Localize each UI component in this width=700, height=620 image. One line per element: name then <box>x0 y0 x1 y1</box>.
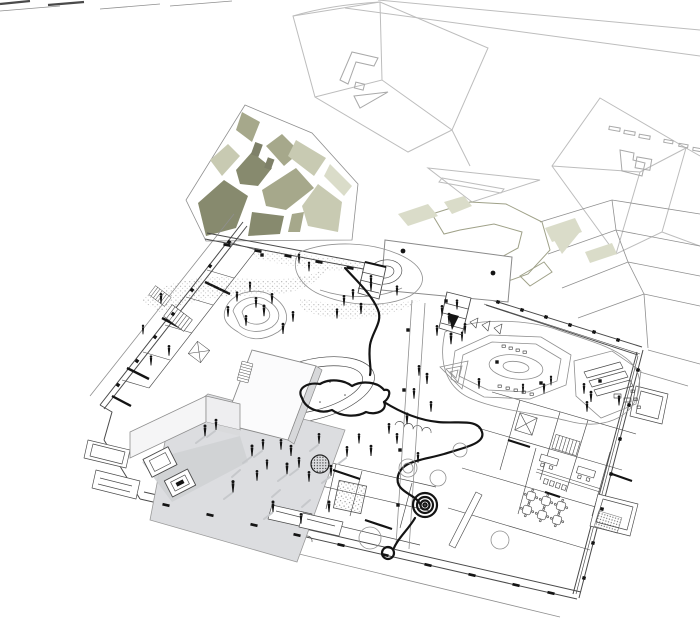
garden-plaza-upper-left <box>186 105 358 241</box>
entry-bridge <box>439 292 471 335</box>
desk-cluster <box>536 454 601 492</box>
context-buildings <box>0 0 700 386</box>
site-plan-drawing: Axonometric black-and-white architectura… <box>0 0 700 620</box>
elevator-east <box>515 413 537 435</box>
context-building-north <box>293 2 488 166</box>
octagon-terrace-mound <box>451 335 571 399</box>
bench-slab <box>449 492 482 548</box>
dark-stipple-circle <box>311 455 329 473</box>
stipple-band-3 <box>250 248 380 271</box>
sandbox <box>333 480 366 513</box>
edge-northeast <box>482 297 642 355</box>
flag-triangles <box>470 318 502 334</box>
axonometric-site-plan: Axonometric black-and-white architectura… <box>0 0 700 620</box>
east-porch-1 <box>630 386 668 424</box>
context-sweep-lines <box>293 0 700 56</box>
context-triangle-pad <box>428 168 540 202</box>
elevator-west <box>188 341 209 362</box>
roof-details <box>609 126 700 176</box>
stairs-east <box>552 434 580 455</box>
top-edge-tick-marks <box>0 1 232 11</box>
context-path-web-east <box>540 200 700 386</box>
